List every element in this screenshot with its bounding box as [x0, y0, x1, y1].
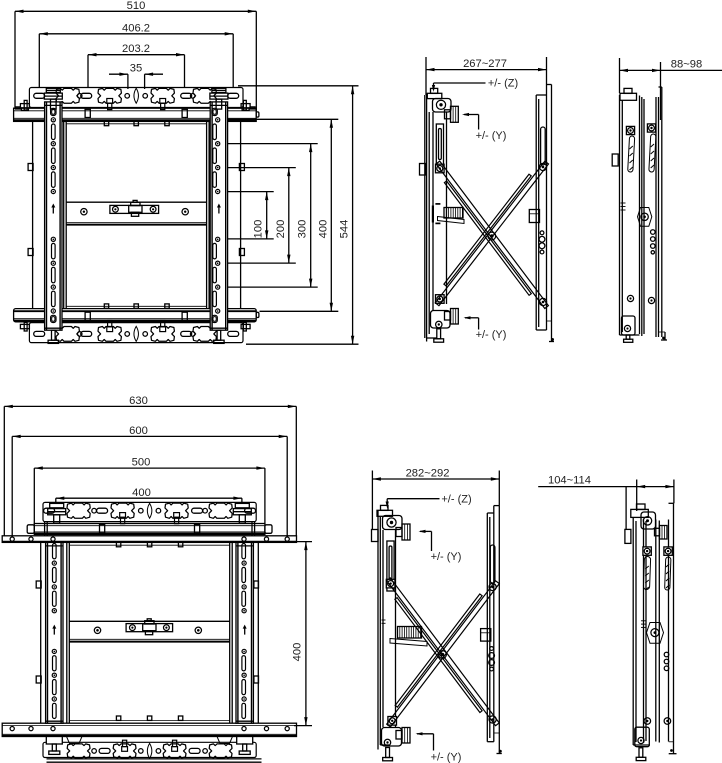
- svg-text:88~98: 88~98: [671, 58, 702, 70]
- svg-text:267~277: 267~277: [463, 58, 507, 70]
- svg-text:600: 600: [129, 425, 148, 437]
- svg-text:300: 300: [297, 220, 309, 239]
- svg-text:100: 100: [253, 220, 265, 239]
- svg-text:+/- (Y): +/- (Y): [431, 551, 462, 563]
- svg-text:203.2: 203.2: [122, 43, 150, 55]
- svg-text:630: 630: [129, 395, 148, 407]
- svg-text:+/- (Y): +/- (Y): [431, 752, 462, 763]
- svg-text:+/- (Z): +/- (Z): [441, 493, 471, 505]
- svg-text:500: 500: [132, 457, 151, 469]
- svg-text:282~292: 282~292: [406, 468, 450, 480]
- svg-text:+/- (Z): +/- (Z): [488, 78, 518, 90]
- svg-text:+/- (Y): +/- (Y): [476, 329, 507, 341]
- svg-text:544: 544: [339, 220, 351, 239]
- svg-text:400: 400: [317, 220, 329, 239]
- svg-text:510: 510: [127, 0, 146, 12]
- svg-text:400: 400: [292, 643, 304, 662]
- svg-text:104~114: 104~114: [548, 474, 591, 486]
- svg-text:200: 200: [275, 220, 287, 239]
- svg-text:400: 400: [132, 487, 151, 499]
- svg-text:+/- (Y): +/- (Y): [476, 130, 507, 142]
- svg-text:35: 35: [130, 62, 142, 74]
- svg-text:406.2: 406.2: [122, 22, 150, 34]
